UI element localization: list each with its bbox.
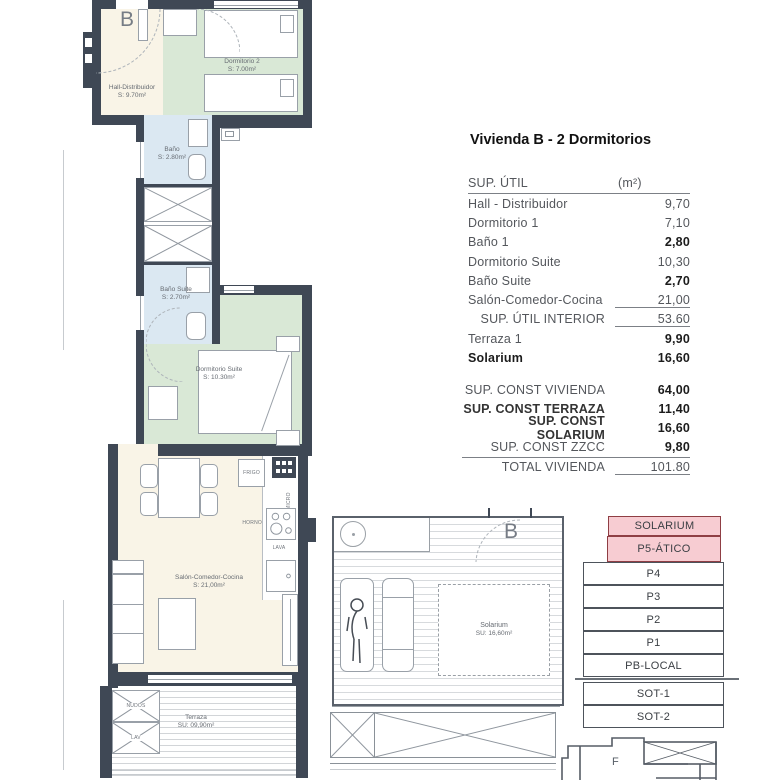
solarium-plan: B Solarium SU: 16,60m² — [332, 516, 564, 706]
area-table: SUP. ÚTIL (m²) Hall - Distribuidor9,70 D… — [468, 176, 690, 368]
sofa — [112, 560, 144, 574]
bath-suite-door-arc — [146, 306, 180, 342]
dimension-line — [63, 150, 64, 350]
person-figure-icon — [341, 579, 373, 671]
wall — [308, 518, 316, 542]
closet — [144, 225, 212, 262]
chair — [140, 464, 158, 488]
oven-label: HORNO — [234, 520, 262, 526]
label-hall: Hall-DistribuidorS: 9.70m² — [94, 84, 170, 101]
wall — [212, 125, 220, 344]
entrance-door-leaf — [138, 9, 148, 41]
sliding-door — [148, 675, 292, 683]
label-bedroom-suite: Dormitorio SuiteS: 10.30m² — [176, 366, 262, 383]
bed — [198, 350, 292, 434]
wall — [298, 456, 308, 688]
sofa — [112, 574, 144, 664]
label-bedroom2: Dormitorio 2S: 7.00m² — [192, 58, 292, 75]
table-row: Dormitorio 17,10 — [468, 213, 690, 232]
terrace-edge-line — [112, 770, 296, 771]
terrace-edge-line — [112, 774, 296, 775]
level-p1: P1 — [583, 631, 724, 654]
chair — [140, 492, 158, 516]
pillow — [280, 15, 294, 33]
chair — [200, 464, 218, 488]
header-unit: (m²) — [618, 176, 642, 190]
label-living: Salón-Comedor-CocinaS: 21,00m² — [163, 574, 255, 591]
page-title: Vivienda B - 2 Dormitorios — [470, 132, 651, 148]
window — [224, 286, 254, 293]
label-solarium: Solarium — [480, 621, 508, 630]
wall — [144, 262, 212, 265]
wall-tick — [530, 508, 532, 518]
table-row: Baño 12,80 — [468, 233, 690, 252]
level-p3: P3 — [583, 585, 724, 608]
totals-row: SUP. CONST ZZCC9,80 — [462, 438, 690, 458]
lav-label: LAV — [130, 735, 142, 741]
sun-lounger — [382, 578, 414, 672]
bedroom2-door-arc — [196, 9, 240, 53]
totals-table: SUP. CONST VIVIENDA64,00 SUP. CONST TERR… — [462, 380, 690, 477]
closet — [144, 187, 212, 222]
toilet — [186, 312, 206, 340]
level-p2: P2 — [583, 608, 724, 631]
washer-label: LAVA — [262, 545, 296, 551]
level-p4: P4 — [583, 562, 724, 585]
wall — [302, 285, 312, 456]
core-cell — [375, 713, 555, 757]
sun-lounger — [340, 578, 374, 672]
dining-table — [158, 458, 200, 518]
wall — [212, 115, 312, 128]
header-label: SUP. ÚTIL — [468, 176, 528, 193]
nudos-label: NUDOS — [125, 703, 146, 709]
tall-cabinet — [282, 594, 298, 666]
sink — [188, 119, 208, 147]
ground-line — [575, 678, 739, 680]
unit-letter: B — [120, 8, 134, 32]
core-line — [330, 769, 556, 770]
label-bath-suite: Baño SuiteS: 2.70m² — [144, 286, 208, 303]
window — [214, 1, 298, 8]
meter-icon — [85, 54, 92, 63]
kitchen-sink — [266, 560, 296, 592]
pillow — [280, 79, 294, 97]
nightstand — [276, 430, 300, 446]
table-row: Hall - Distribuidor9,70 — [468, 194, 690, 213]
hob-grille — [272, 457, 296, 478]
cooktop — [266, 508, 296, 540]
fridge: FRIGO — [238, 459, 265, 487]
mini-plan-letter: F — [612, 756, 619, 768]
dresser — [148, 386, 178, 420]
label-terrace: TerrazaSU: 09,90m² — [150, 714, 242, 731]
solarium-base-line — [332, 706, 560, 707]
coffee-table — [158, 598, 196, 650]
stair-core — [330, 712, 556, 758]
solarium-door-arc — [474, 518, 520, 562]
window — [136, 142, 144, 178]
level-p5-atico: P5-ÁTICO — [607, 536, 721, 562]
brochure-page: FRIGO MICRO HORNO LAVA NUDOS — [0, 0, 780, 780]
wall — [303, 0, 312, 128]
label-solarium-area: SU: 16,60m² — [476, 630, 513, 638]
table-row: Baño Suite2,70 — [468, 271, 690, 290]
meter-icon — [85, 38, 92, 47]
level-solarium: SOLARIUM — [608, 516, 721, 536]
table-row: Dormitorio Suite10,30 — [468, 252, 690, 271]
wardrobe — [163, 9, 197, 36]
living-passage — [118, 444, 158, 456]
dimension-line — [63, 600, 64, 770]
level-pb-local: PB-LOCAL — [583, 654, 724, 677]
core-line — [330, 763, 556, 764]
nightstand — [276, 336, 300, 352]
totals-row: SUP. CONST VIVIENDA64,00 — [462, 380, 690, 399]
table-row: Solarium16,60 — [468, 348, 690, 367]
core-cell — [331, 713, 375, 757]
wall — [296, 686, 308, 778]
area-table-header: SUP. ÚTIL (m²) — [468, 176, 690, 194]
label-bath1: BañoS: 2.80m² — [144, 146, 200, 163]
fridge-label: FRIGO — [243, 470, 260, 476]
solarium-zone: Solarium SU: 16,60m² — [438, 584, 550, 676]
window — [136, 296, 144, 330]
table-row-subtotal: SUP. ÚTIL INTERIOR53.60 — [468, 310, 690, 329]
wall — [100, 686, 112, 778]
chair — [200, 492, 218, 516]
building-level-stack: SOLARIUM P5-ÁTICO P4 P3 P2 P1 PB-LOCAL S… — [583, 516, 723, 736]
totals-row: SUP. CONST SOLARIUM16,60 — [462, 418, 690, 437]
table-row: Terraza 19,90 — [468, 329, 690, 348]
table-row: Salón-Comedor-Cocina21,00 — [468, 290, 690, 309]
mini-key-plan — [556, 734, 766, 780]
shower-tray — [340, 521, 366, 547]
level-sot1: SOT-1 — [583, 682, 724, 705]
vent-grille — [225, 131, 234, 137]
level-sot2: SOT-2 — [583, 705, 724, 728]
totals-row-grand: TOTAL VIVIENDA101.80 — [462, 458, 690, 477]
wall-tick — [488, 508, 490, 518]
